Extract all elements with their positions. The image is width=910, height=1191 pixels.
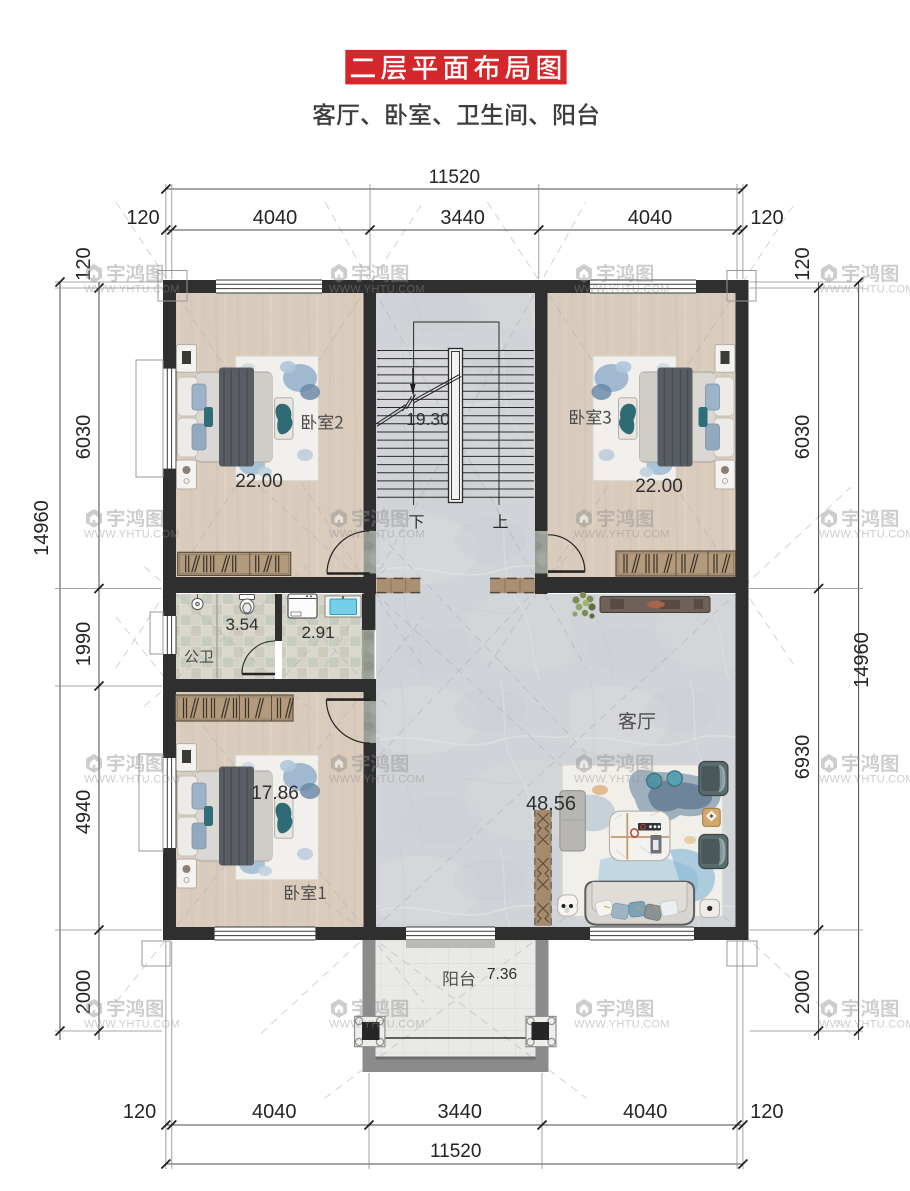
svg-text:120: 120 [750,207,783,229]
svg-text:WWW.YHTU.COM: WWW.YHTU.COM [819,1019,910,1031]
svg-text:6930: 6930 [792,735,814,780]
svg-text:4940: 4940 [73,790,95,835]
svg-text:22.00: 22.00 [635,476,683,497]
svg-text:WWW.YHTU.COM: WWW.YHTU.COM [574,529,670,541]
svg-text:WWW.YHTU.COM: WWW.YHTU.COM [574,774,670,786]
svg-text:WWW.YHTU.COM: WWW.YHTU.COM [574,284,670,296]
svg-text:WWW.YHTU.COM: WWW.YHTU.COM [819,284,910,296]
svg-text:WWW.YHTU.COM: WWW.YHTU.COM [819,529,910,541]
svg-text:WWW.YHTU.COM: WWW.YHTU.COM [574,1019,670,1031]
svg-text:6030: 6030 [73,415,95,460]
svg-text:WWW.YHTU.COM: WWW.YHTU.COM [819,774,910,786]
svg-text:WWW.YHTU.COM: WWW.YHTU.COM [329,284,425,296]
svg-text:WWW.YHTU.COM: WWW.YHTU.COM [329,529,425,541]
svg-text:11520: 11520 [430,1141,481,1162]
svg-text:WWW.YHTU.COM: WWW.YHTU.COM [84,529,180,541]
svg-text:14960: 14960 [851,632,873,688]
svg-text:2.91: 2.91 [301,623,334,642]
svg-text:WWW.YHTU.COM: WWW.YHTU.COM [329,1019,425,1031]
svg-text:WWW.YHTU.COM: WWW.YHTU.COM [84,284,180,296]
svg-text:4040: 4040 [252,1101,297,1123]
svg-text:7.36: 7.36 [487,966,517,983]
svg-text:19.30: 19.30 [406,409,450,429]
svg-text:120: 120 [123,1101,156,1123]
svg-text:WWW.YHTU.COM: WWW.YHTU.COM [84,1019,180,1031]
svg-text:11520: 11520 [429,167,480,188]
svg-text:WWW.YHTU.COM: WWW.YHTU.COM [329,774,425,786]
svg-text:48.56: 48.56 [526,793,576,815]
svg-text:WWW.YHTU.COM: WWW.YHTU.COM [84,774,180,786]
svg-text:4040: 4040 [628,207,673,229]
svg-text:17.86: 17.86 [251,783,299,804]
svg-text:4040: 4040 [623,1101,668,1123]
svg-text:4040: 4040 [253,207,298,229]
svg-text:3440: 3440 [440,207,485,229]
svg-text:2000: 2000 [792,970,814,1015]
svg-text:120: 120 [792,247,814,280]
svg-text:22.00: 22.00 [235,471,283,492]
svg-text:14960: 14960 [31,500,53,556]
svg-text:6030: 6030 [792,415,814,460]
svg-text:120: 120 [750,1101,783,1123]
svg-text:120: 120 [126,207,159,229]
svg-text:3.54: 3.54 [225,615,258,634]
svg-text:1990: 1990 [73,622,95,667]
svg-text:3440: 3440 [438,1101,483,1123]
